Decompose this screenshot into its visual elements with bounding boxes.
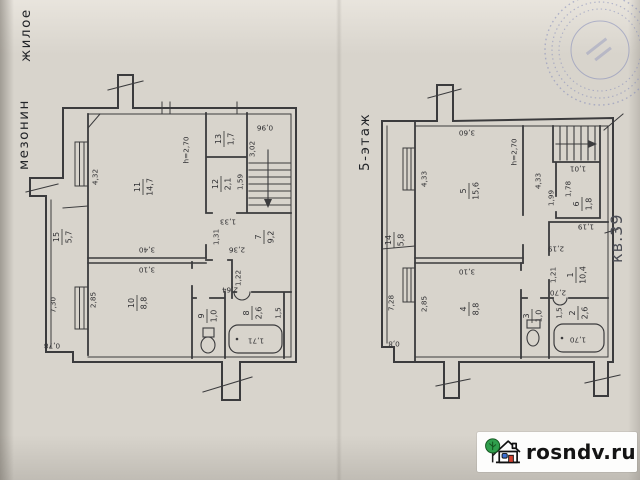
room-label-1: 1 10,4 — [566, 266, 588, 284]
dim-1-19: 1,19 — [578, 223, 595, 232]
svg-text:2,6: 2,6 — [581, 307, 590, 320]
dim-1-5-left: 1,5 — [274, 307, 283, 319]
room-label-13: 13 1,7 — [214, 131, 236, 147]
toilet-icon — [201, 328, 215, 353]
room-label-9: 9 1,0 — [197, 309, 219, 323]
dim-0-96: 0,96 — [257, 124, 274, 133]
dim-1-31: 1,31 — [212, 229, 221, 245]
stairs-symbol — [556, 126, 597, 160]
labels: жилое мезонин 5-этаж кв.39 11 14,7 13 1,… — [16, 8, 626, 350]
apartment-number: кв.39 — [607, 213, 626, 263]
dim-3-40: 3,40 — [139, 246, 156, 255]
room-label-2: 2 2,6 — [568, 306, 590, 320]
svg-text:4: 4 — [459, 306, 468, 311]
dim-7-28: 7,28 — [387, 295, 396, 312]
svg-text:5: 5 — [459, 188, 468, 193]
dim-4-32: 4,32 — [91, 169, 100, 185]
window-symbol — [75, 142, 88, 329]
svg-text:12: 12 — [211, 179, 220, 189]
dim-1-22: 1,22 — [234, 270, 243, 286]
site-name: rosndv.ru — [526, 440, 636, 464]
dim-1-21: 1,21 — [549, 267, 558, 283]
svg-text:7: 7 — [254, 234, 263, 239]
dim-1-01: 1,01 — [570, 165, 586, 174]
dim-0-78: 0,78 — [44, 342, 61, 351]
svg-text:6: 6 — [572, 201, 581, 206]
svg-text:14: 14 — [384, 235, 393, 245]
room-label-12: 12 2,1 — [211, 176, 233, 192]
svg-text:13: 13 — [214, 134, 223, 144]
dim-1-5-right: 1,5 — [555, 307, 564, 319]
svg-text:5,7: 5,7 — [65, 231, 74, 244]
watermark-logo — [484, 436, 522, 468]
room-label-15: 15 5,7 — [52, 229, 74, 245]
dim-7-30: 7,30 — [49, 297, 58, 314]
svg-text:2,6: 2,6 — [255, 307, 264, 320]
dim-2-64: 2,64 — [222, 286, 239, 295]
stamp — [545, 0, 640, 105]
left-plan-room-divider — [88, 258, 206, 263]
dim-1-78: 1,78 — [564, 181, 573, 198]
right-plan-room-divider — [415, 258, 523, 263]
dim-1-33: 1,33 — [220, 218, 237, 227]
svg-text:10: 10 — [127, 298, 136, 308]
svg-text:9: 9 — [197, 313, 206, 318]
label-zhiloe: жилое — [18, 8, 34, 62]
dim-2-70: 2,70 — [550, 289, 567, 298]
house-door-icon — [509, 455, 514, 462]
watermark: rosndv.ru — [477, 432, 637, 472]
dim-4-33-corridor: 4,33 — [534, 173, 543, 190]
svg-text:8,8: 8,8 — [140, 297, 149, 310]
floorplan-photo: жилое мезонин 5-этаж кв.39 11 14,7 13 1,… — [0, 0, 640, 480]
svg-text:1,0: 1,0 — [535, 310, 544, 323]
room-label-8: 8 2,6 — [242, 306, 264, 320]
toilet-icon — [527, 320, 540, 346]
svg-text:15: 15 — [52, 232, 61, 242]
dim-height-left: h=2,70 — [182, 136, 191, 163]
svg-text:15,6: 15,6 — [472, 182, 481, 200]
dim-0-8: 0,8 — [388, 340, 400, 349]
room-label-5: 5 15,6 — [459, 182, 481, 200]
room-label-6: 6 1,8 — [572, 197, 594, 211]
room-label-10: 10 8,8 — [127, 295, 149, 311]
dim-1-71: 1,71 — [248, 337, 264, 346]
svg-text:11: 11 — [133, 182, 142, 192]
room-label-3: 3 1,0 — [522, 309, 544, 323]
plan-title-mezonin: мезонин — [16, 99, 32, 170]
dim-1-70: 1,70 — [570, 336, 587, 345]
svg-text:10,4: 10,4 — [579, 266, 588, 284]
svg-text:1,7: 1,7 — [227, 133, 236, 146]
dim-3-10-left: 3,10 — [139, 266, 156, 275]
dim-2-36: 2,36 — [229, 246, 246, 255]
dim-3-60: 3,60 — [459, 129, 476, 138]
svg-text:1: 1 — [566, 272, 575, 277]
dim-3-10-right: 3,10 — [459, 268, 476, 277]
house-window-icon — [502, 453, 507, 458]
dim-3-02: 3,02 — [248, 141, 257, 157]
dim-2-19: 2,19 — [548, 245, 565, 254]
right-plan-inner-faces — [387, 126, 608, 357]
room-label-7: 7 9,2 — [254, 230, 276, 244]
right-plan — [382, 85, 623, 398]
plan-title-5-etazh: 5-этаж — [357, 113, 373, 171]
dim-1-59: 1,59 — [236, 174, 245, 191]
svg-text:3: 3 — [522, 313, 531, 318]
sink-icon — [553, 298, 567, 305]
right-plan-chimney-ticks — [428, 89, 620, 386]
svg-text:2: 2 — [568, 310, 577, 315]
svg-text:1,0: 1,0 — [210, 310, 219, 323]
svg-text:9,2: 9,2 — [267, 231, 276, 244]
svg-text:8,8: 8,8 — [472, 303, 481, 316]
svg-text:2,1: 2,1 — [224, 178, 233, 191]
room-label-4: 4 8,8 — [459, 302, 481, 316]
room-label-11: 11 14,7 — [133, 178, 155, 196]
svg-text:5,8: 5,8 — [397, 234, 406, 247]
dim-4-33-room5: 4,33 — [420, 171, 429, 188]
right-plan-outer-wall — [382, 85, 613, 398]
tree-icon — [486, 439, 500, 463]
dim-2-85-left: 2,85 — [89, 292, 98, 308]
dim-2-85-right: 2,85 — [420, 296, 429, 312]
svg-text:1,8: 1,8 — [585, 198, 594, 211]
window-symbol — [403, 148, 415, 302]
svg-text:8: 8 — [242, 310, 251, 315]
svg-text:14,7: 14,7 — [146, 178, 155, 196]
dim-1-99: 1,99 — [547, 190, 556, 207]
floorplan-drawing: жилое мезонин 5-этаж кв.39 11 14,7 13 1,… — [0, 0, 640, 480]
dim-height-right: h=2,70 — [510, 138, 519, 165]
stairs-symbol — [249, 150, 290, 208]
